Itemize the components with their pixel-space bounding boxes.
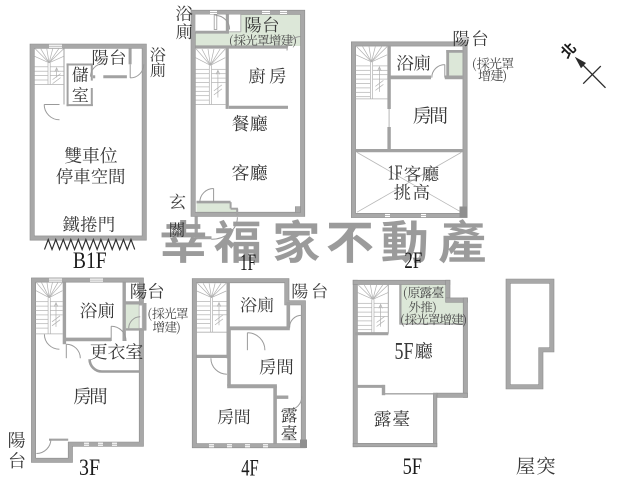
- svg-text:3F: 3F: [79, 455, 100, 480]
- svg-text:B1F: B1F: [73, 248, 107, 274]
- svg-text:5F: 5F: [395, 339, 414, 365]
- svg-text:1F: 1F: [388, 160, 403, 184]
- svg-text:1F: 1F: [240, 250, 256, 275]
- svg-text:5F: 5F: [403, 454, 422, 479]
- svg-text:2F: 2F: [404, 248, 422, 273]
- svg-text:4F: 4F: [241, 456, 259, 480]
